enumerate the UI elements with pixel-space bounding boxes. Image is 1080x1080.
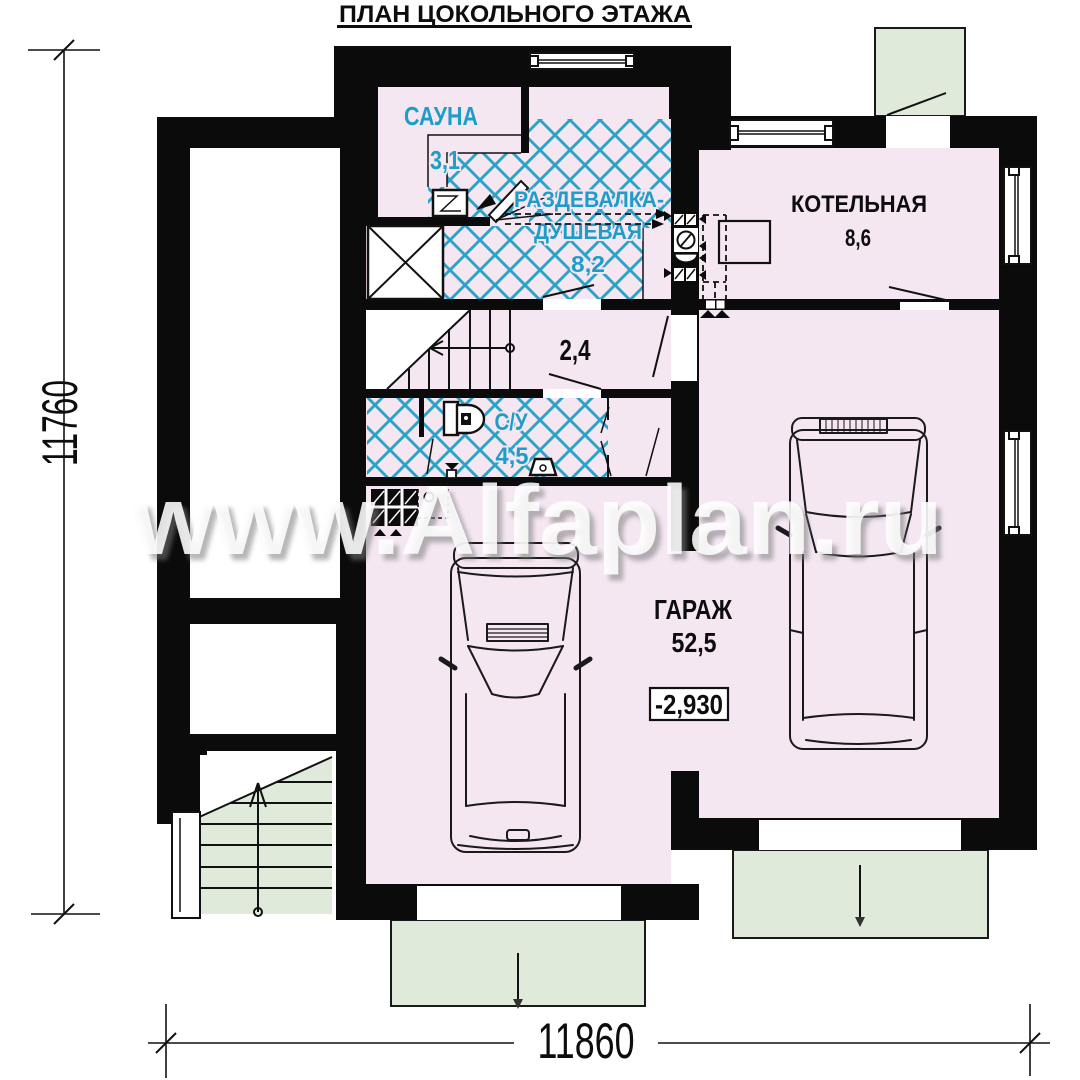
svg-text:11760: 11760 [32,380,88,466]
svg-text:11860: 11860 [538,1013,635,1069]
svg-text:-2,930: -2,930 [655,689,723,720]
svg-text:РАЗДЕВАЛКА-: РАЗДЕВАЛКА- [514,187,664,212]
svg-text:www.Alfaplan.ru: www.Alfaplan.ru [132,465,943,575]
svg-text:8,6: 8,6 [845,225,871,252]
svg-text:С/У: С/У [495,409,529,436]
svg-text:3,1: 3,1 [430,145,460,175]
svg-text:КОТЕЛЬНАЯ: КОТЕЛЬНАЯ [791,191,927,218]
svg-text:52,5: 52,5 [672,627,717,658]
svg-text:ГАРАЖ: ГАРАЖ [654,594,733,625]
svg-text:ПЛАН ЦОКОЛЬНОГО ЭТАЖА: ПЛАН ЦОКОЛЬНОГО ЭТАЖА [339,1,691,28]
svg-text:8,2: 8,2 [571,251,605,277]
svg-text:САУНА: САУНА [404,101,478,131]
svg-text:2,4: 2,4 [560,335,591,367]
svg-text:ДУШЕВАЯ: ДУШЕВАЯ [534,219,642,244]
